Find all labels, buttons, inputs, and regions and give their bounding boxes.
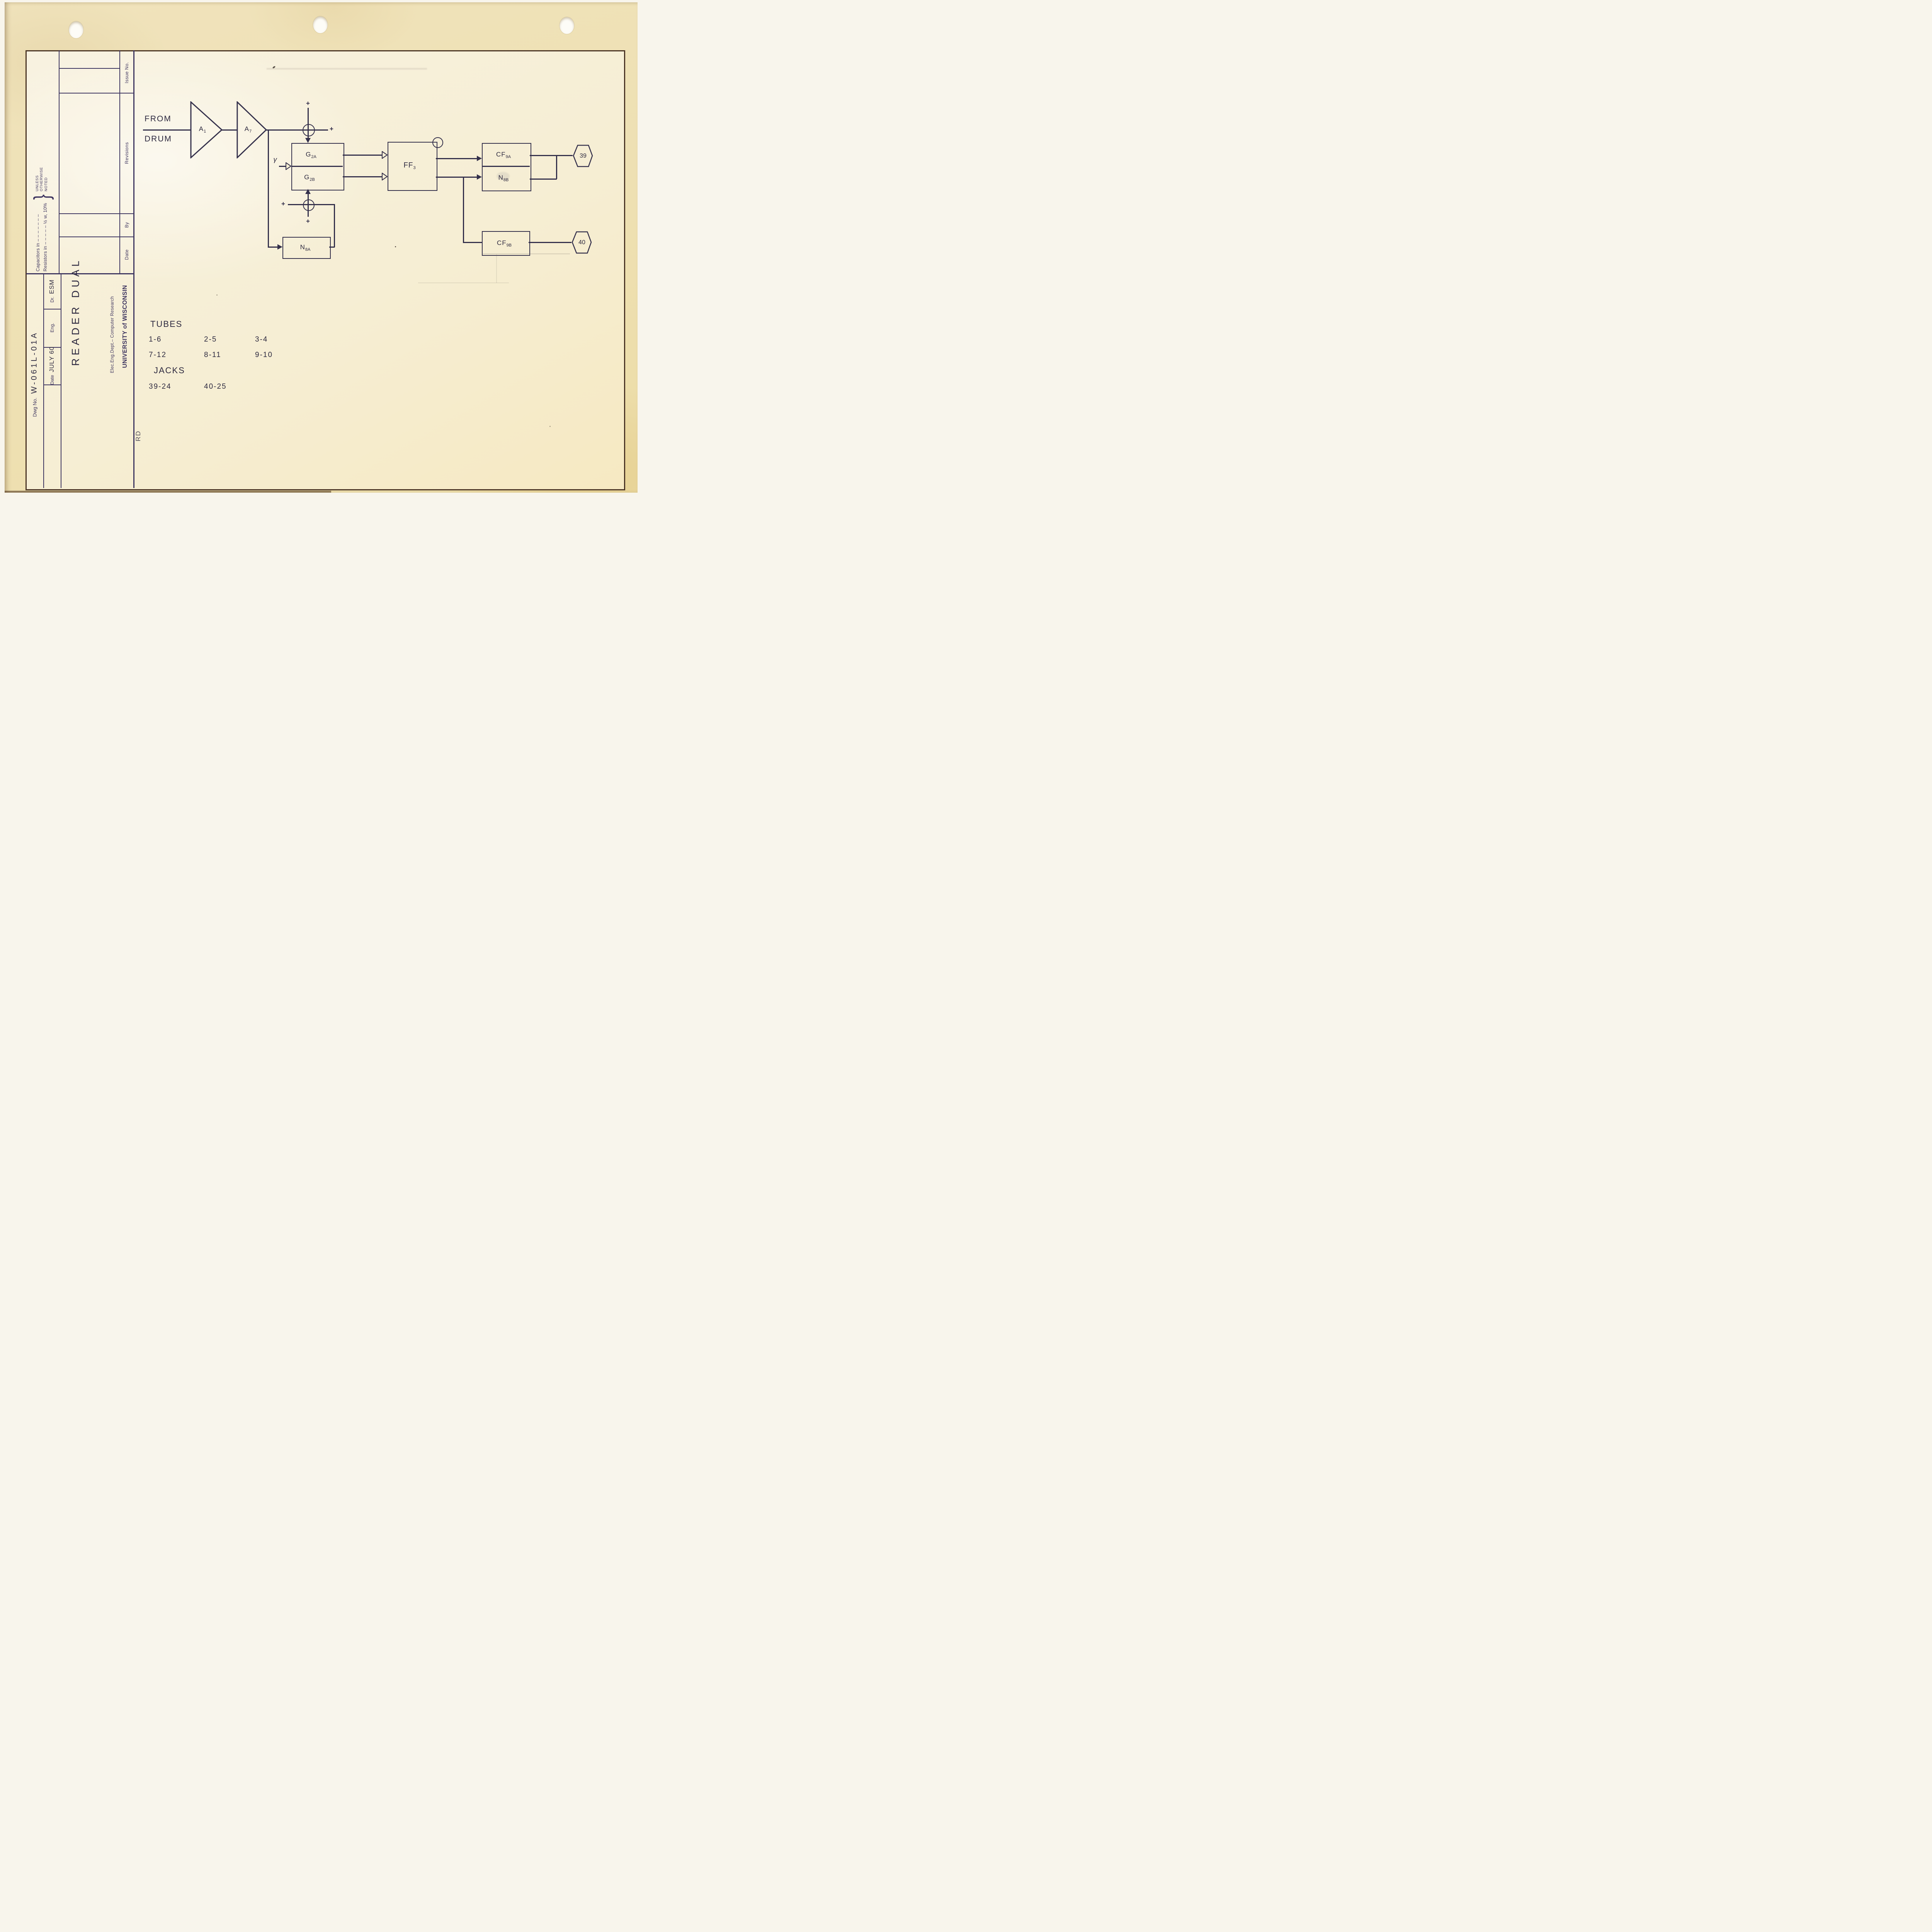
arrow-into-g2a-top <box>305 138 311 143</box>
paper-bottom-edge <box>5 491 331 493</box>
engineer-cell: Eng. <box>49 323 55 333</box>
wire-cf9b-in <box>463 242 482 243</box>
titleblock-row-line-2 <box>59 93 134 94</box>
dust-speck <box>395 246 396 247</box>
open-arrow-ff3-lower <box>382 173 388 180</box>
tube-pair: 1-6 <box>149 335 162 344</box>
organization-name: UNIVERSITY of WISCONSIN <box>122 285 129 368</box>
wire-n8b-out <box>530 179 557 180</box>
tube-pair: 9-10 <box>255 351 273 359</box>
drawing-frame <box>26 50 625 490</box>
date-cell: Date JULY 60 <box>49 346 56 384</box>
titleblock-row-line-1 <box>59 68 120 69</box>
tube-pair: 8-11 <box>204 351 221 359</box>
open-arrow-ff3-upper <box>382 151 388 159</box>
gate-box <box>291 143 344 190</box>
scanned-drawing-sheet: Issue No. Revisions By Date Capacitors i… <box>0 0 638 493</box>
drawing-title: READER DUAL <box>70 258 82 366</box>
dust-speck <box>216 294 218 296</box>
cf9a-label: CF9A <box>496 151 511 159</box>
pencil-smudge <box>267 68 427 70</box>
tube-pair: 3-4 <box>255 335 268 344</box>
tube-pair: 2-5 <box>204 335 217 344</box>
resistors-note: Resistors in – – – – – ½ w, 10% <box>42 203 49 271</box>
erased-line-2 <box>496 254 497 283</box>
gate-g2a-label: G2A <box>306 151 316 159</box>
plus-sign-top: + <box>306 100 310 107</box>
wire-loop-right <box>334 204 335 247</box>
sum-junction-bottom <box>303 199 315 211</box>
brace-glyph: } <box>31 194 53 200</box>
gate-g2b-label: G2B <box>304 173 315 182</box>
dust-speck <box>549 426 551 427</box>
arrow-into-n8a <box>277 244 282 250</box>
amp-a7-label: A7 <box>245 125 252 134</box>
wire-ff3-n8b <box>436 177 477 178</box>
dr-label: Dr. <box>49 297 55 303</box>
wire-g2a-ff3 <box>343 155 382 156</box>
wire-bracket <box>556 155 557 179</box>
date-value: JULY 60 <box>49 346 56 372</box>
n8b-label: N8B <box>498 174 509 182</box>
erased-line-3 <box>418 282 509 283</box>
wire-a1-a7 <box>221 129 237 131</box>
source-label-drum: DRUM <box>145 134 172 144</box>
arrow-into-cf9a <box>477 156 482 161</box>
cf9b-label: CF9B <box>497 239 512 248</box>
issue-no-label: Issue No. <box>124 62 129 83</box>
dwg-no-label: Dwg No. <box>32 398 38 417</box>
punch-hole-left <box>69 21 83 38</box>
dwg-no-value: W-061L-01A <box>30 331 39 394</box>
open-arrow-gamma <box>286 162 292 170</box>
titleblock-divider-a-b <box>59 50 60 273</box>
revisions-label: Revisions <box>124 142 129 164</box>
wire-cf9a-out <box>530 155 573 156</box>
n8a-label: N8A <box>300 243 311 252</box>
gamma-input-label: γ <box>274 156 277 164</box>
plus-sign-loop-bottom: + <box>306 218 310 225</box>
corner-code: RD <box>134 430 142 442</box>
tubes-heading: TUBES <box>150 319 182 329</box>
plus-sign-right: + <box>330 125 333 133</box>
capacitors-note: Capacitors in – – – – – – – <box>34 203 42 271</box>
wire-cf9b-out <box>529 242 571 243</box>
titleblock-divider-dwg <box>43 273 44 488</box>
jack-pair: 39-24 <box>149 383 172 391</box>
by-label: By <box>124 222 129 228</box>
arrow-into-n8b <box>477 174 482 180</box>
organization-dept: Elec.Eng.Dept.– Computer Research <box>110 296 115 373</box>
date-label: Date <box>49 375 55 384</box>
amp-a1-label: A1 <box>199 125 206 134</box>
wire-g2b-ff3 <box>343 176 382 177</box>
titleblock-row-line-3 <box>59 213 134 214</box>
titleblock-divider-cells <box>61 273 61 488</box>
cf9a-n8b-box <box>482 143 531 191</box>
titleblock-row-line-4 <box>59 236 134 237</box>
date-column-label: Date <box>124 249 129 260</box>
cf9a-n8b-divider <box>482 166 530 167</box>
ff3-state-circle <box>432 137 443 148</box>
amp-a7-triangle <box>236 101 267 158</box>
ff3-label: FF3 <box>403 162 415 170</box>
jacks-heading: JACKS <box>154 366 185 376</box>
dwg-no-block: Dwg No. W-061L-01A <box>30 331 39 417</box>
jack-pair: 40-25 <box>204 383 227 391</box>
wire-ff3-cf9a <box>436 158 477 159</box>
punch-hole-middle <box>313 16 328 33</box>
drafter-cell: Dr. ESM <box>49 279 56 303</box>
sum-junction-top <box>303 124 315 136</box>
wire-input <box>143 129 191 131</box>
gate-box-divider <box>291 166 343 167</box>
tube-pair: 7-12 <box>149 351 167 359</box>
wire-n8a-in <box>268 247 278 248</box>
jack-39-number: 39 <box>580 153 587 160</box>
source-label-from: FROM <box>145 114 172 124</box>
titleblock-right-border <box>133 50 134 488</box>
component-notes-block: Capacitors in – – – – – – – Resistors in… <box>34 53 50 272</box>
jack-40-number: 40 <box>578 239 585 246</box>
plus-sign-loop-left: + <box>281 200 285 208</box>
wire-main <box>266 129 328 131</box>
amp-a1-triangle <box>190 101 223 158</box>
dr-value: ESM <box>49 279 56 294</box>
wire-branch-down <box>268 129 269 247</box>
eng-label: Eng. <box>49 323 55 333</box>
titleblock-dr-cell-line <box>43 309 61 310</box>
titleblock-divider-b-c <box>119 50 120 273</box>
wire-branch-cf9b <box>463 177 464 243</box>
punch-hole-right <box>560 17 574 34</box>
unless-otherwise-noted: UNLESS OTHERWISE NOTED <box>35 167 48 191</box>
